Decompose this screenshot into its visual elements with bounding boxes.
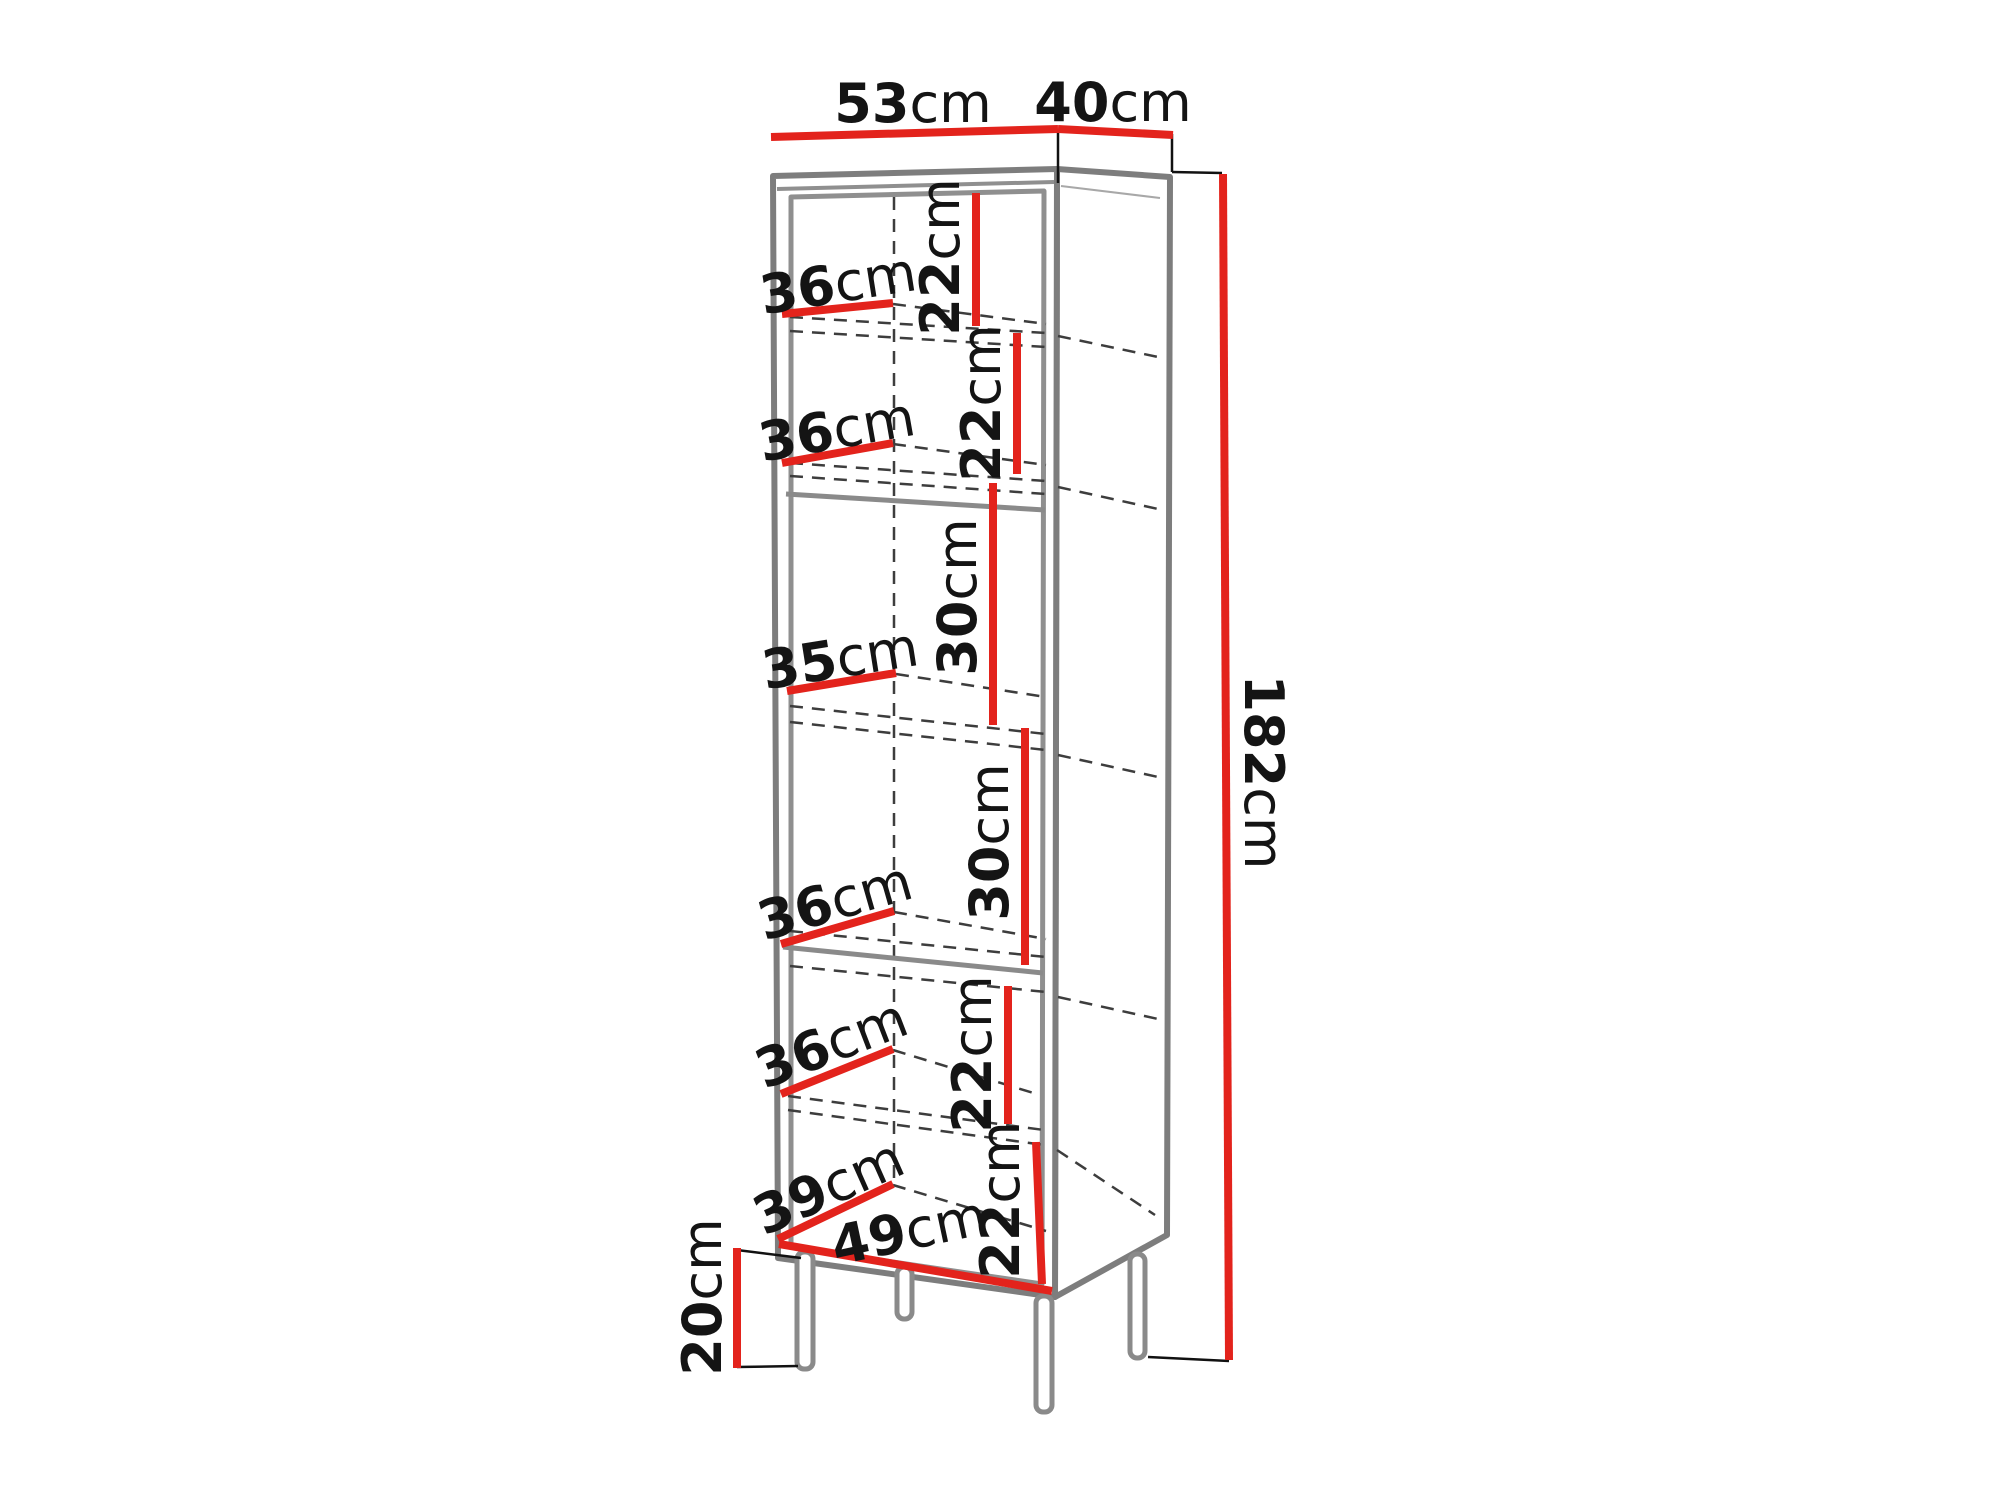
dim-label-shelf1-height: 22cm <box>909 178 972 335</box>
dim-label-top-width: 53cm <box>834 72 991 135</box>
height-top-tick <box>1172 172 1222 173</box>
dim-label-shelf5-height: 22cm <box>941 975 1004 1132</box>
dimension-diagram-canvas: 53cm 40cm 182cm 20cm 36cm 22cm 36cm 22cm… <box>0 0 2000 1499</box>
dim-label-leg-height: 20cm <box>671 1218 734 1375</box>
dim-label-shelf3-height: 30cm <box>926 518 989 675</box>
cabinet-side-face <box>1055 169 1170 1297</box>
dim-label-bottom-height: 22cm <box>969 1121 1032 1278</box>
dim-label-total-height: 182cm <box>1232 674 1295 869</box>
leg-front-left <box>797 1252 813 1369</box>
leg-front-right <box>1036 1296 1052 1412</box>
leg-back-left <box>897 1267 912 1319</box>
leg-bottom-tick <box>737 1366 798 1367</box>
dim-label-shelf2-height: 22cm <box>950 324 1013 481</box>
dim-label-top-depth: 40cm <box>1034 71 1191 134</box>
cabinet-dimension-drawing: 53cm 40cm 182cm 20cm 36cm 22cm 36cm 22cm… <box>0 0 2000 1499</box>
leg-back-right <box>1130 1254 1145 1358</box>
height-bottom-tick <box>1148 1357 1229 1361</box>
dim-line-total-height <box>1223 174 1229 1360</box>
dim-label-shelf4-height: 30cm <box>958 763 1021 920</box>
